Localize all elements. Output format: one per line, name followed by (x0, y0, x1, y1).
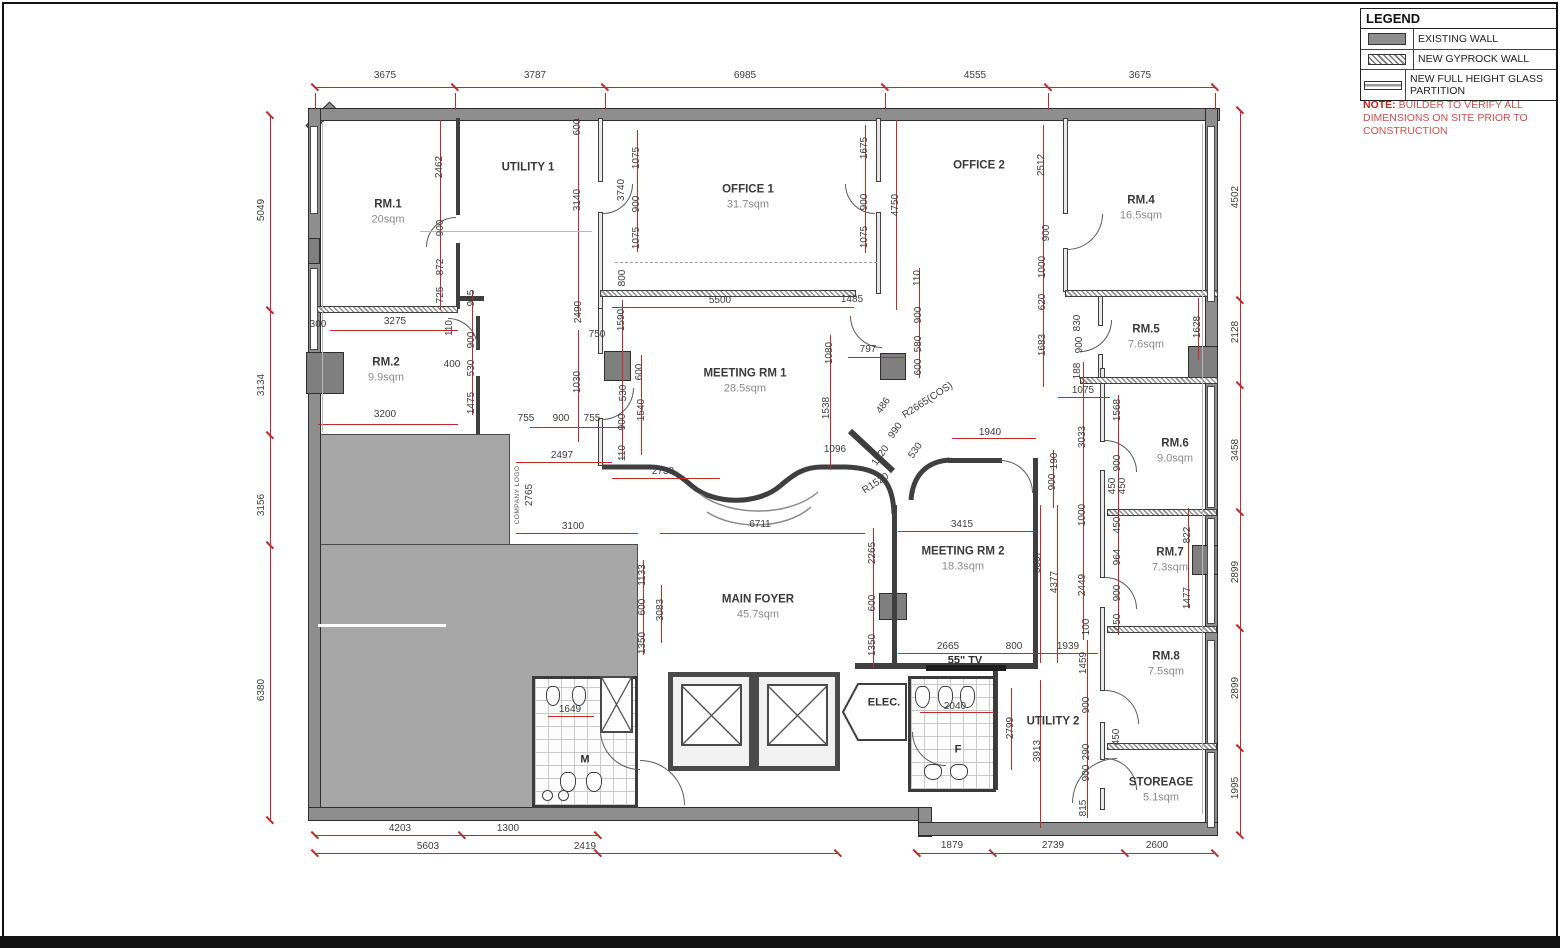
room-area: 18.3sqm (921, 559, 1004, 573)
legend-swatch-cell (1361, 29, 1414, 49)
legend-box: LEGEND EXISTING WALL NEW GYPROCK WALL NE… (1360, 8, 1558, 101)
legend-title: LEGEND (1361, 9, 1557, 29)
room-name: STOREAGE (1129, 775, 1193, 790)
sheet-bottom-bar (0, 936, 1560, 948)
room-label: OFFICE 1 31.7sqm (722, 182, 774, 211)
room-name: RM.6 (1157, 436, 1193, 451)
legend-swatch (1368, 33, 1406, 45)
room-label: STOREAGE 5.1sqm (1129, 775, 1193, 804)
room-name: RM.1 (371, 197, 404, 212)
room-label: RM.2 9.9sqm (368, 355, 404, 384)
legend-label: NEW GYPROCK WALL (1414, 50, 1533, 68)
room-name: OFFICE 2 (953, 159, 1005, 174)
room-label: MEETING RM 1 28.5sqm (703, 366, 786, 395)
room-label: RM.8 7.5sqm (1148, 649, 1184, 678)
room-area: 9.9sqm (368, 370, 404, 384)
room-name: RM.4 (1120, 193, 1162, 208)
legend-row: EXISTING WALL (1361, 29, 1557, 50)
legend-label: EXISTING WALL (1414, 30, 1502, 48)
room-label: MEETING RM 2 18.3sqm (921, 544, 1004, 573)
room-label: MAIN FOYER 45.7sqm (722, 592, 794, 621)
room-name: RM.7 (1152, 545, 1188, 560)
room-area: 28.5sqm (703, 381, 786, 395)
room-area: 5.1sqm (1129, 790, 1193, 804)
room-name: RM.2 (368, 355, 404, 370)
room-label: RM.7 7.3sqm (1152, 545, 1188, 574)
room-area: 31.7sqm (722, 197, 774, 211)
legend-row: NEW GYPROCK WALL (1361, 50, 1557, 70)
legend-rows: EXISTING WALL NEW GYPROCK WALL NEW FULL … (1361, 29, 1557, 100)
room-label: RM.1 20sqm (371, 197, 404, 226)
room-name: RM.5 (1128, 322, 1164, 337)
builder-note: NOTE: BUILDER TO VERIFY ALL DIMENSIONS O… (1363, 99, 1549, 138)
room-name: OFFICE 1 (722, 182, 774, 197)
room-area: 16.5sqm (1120, 208, 1162, 222)
room-label: RM.6 9.0sqm (1157, 436, 1193, 465)
room-area: 7.6sqm (1128, 337, 1164, 351)
room-label: OFFICE 2 (953, 159, 1005, 174)
room-name: MAIN FOYER (722, 592, 794, 607)
note-prefix: NOTE: (1363, 99, 1396, 111)
room-label: RM.4 16.5sqm (1120, 193, 1162, 222)
room-label: RM.5 7.6sqm (1128, 322, 1164, 351)
legend-swatch (1368, 54, 1406, 65)
room-name: UTILITY 2 (1027, 715, 1080, 730)
legend-swatch-cell (1361, 70, 1406, 100)
room-name: UTILITY 1 (502, 161, 555, 176)
room-name: MEETING RM 1 (703, 366, 786, 381)
legend-swatch-cell (1361, 50, 1414, 69)
room-label: UTILITY 1 (502, 161, 555, 176)
room-area: 7.5sqm (1148, 664, 1184, 678)
room-label: UTILITY 2 (1027, 715, 1080, 730)
room-area: 7.3sqm (1152, 560, 1188, 574)
floor-plan-sheet: 3675378769854555367550493134315663804502… (0, 0, 1560, 948)
room-name: MEETING RM 2 (921, 544, 1004, 559)
legend-label: NEW FULL HEIGHT GLASS PARTITION (1406, 70, 1557, 100)
room-area: 9.0sqm (1157, 451, 1193, 465)
room-labels-layer: RM.1 20sqm RM.2 9.9sqm UTILITY 1 OFFICE … (0, 0, 1560, 948)
legend-swatch (1364, 81, 1402, 90)
room-area: 20sqm (371, 212, 404, 226)
legend-row: NEW FULL HEIGHT GLASS PARTITION (1361, 70, 1557, 100)
room-name: RM.8 (1148, 649, 1184, 664)
room-area: 45.7sqm (722, 607, 794, 621)
